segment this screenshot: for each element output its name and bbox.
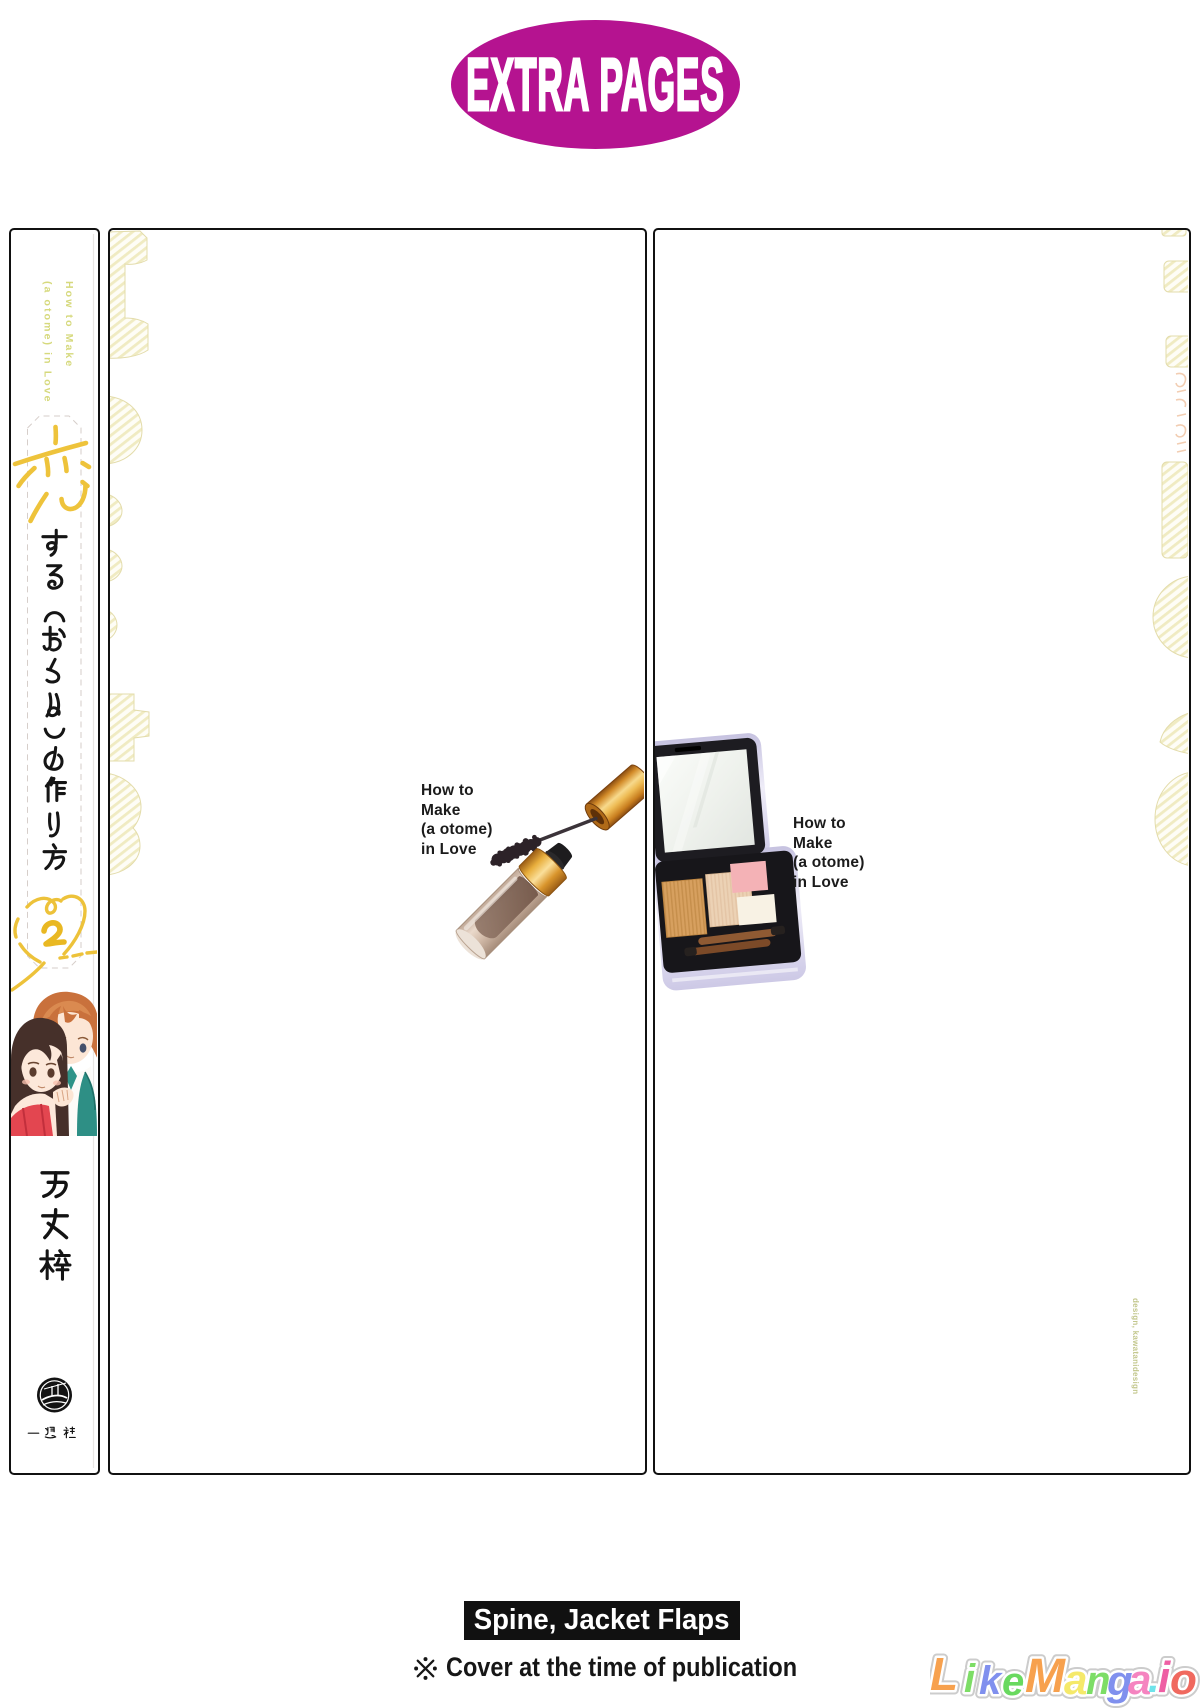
svg-text:a: a: [1064, 1656, 1087, 1703]
svg-text:(a otome) in Love: (a otome) in Love: [42, 281, 54, 404]
svg-text:k: k: [979, 1659, 1003, 1703]
svg-text:o: o: [1170, 1655, 1197, 1704]
svg-text:M: M: [1025, 1650, 1066, 1703]
svg-text:L: L: [930, 1648, 958, 1700]
svg-text:e: e: [1002, 1660, 1024, 1704]
svg-text:i: i: [964, 1657, 976, 1701]
svg-text:How to Make: How to Make: [63, 281, 75, 368]
